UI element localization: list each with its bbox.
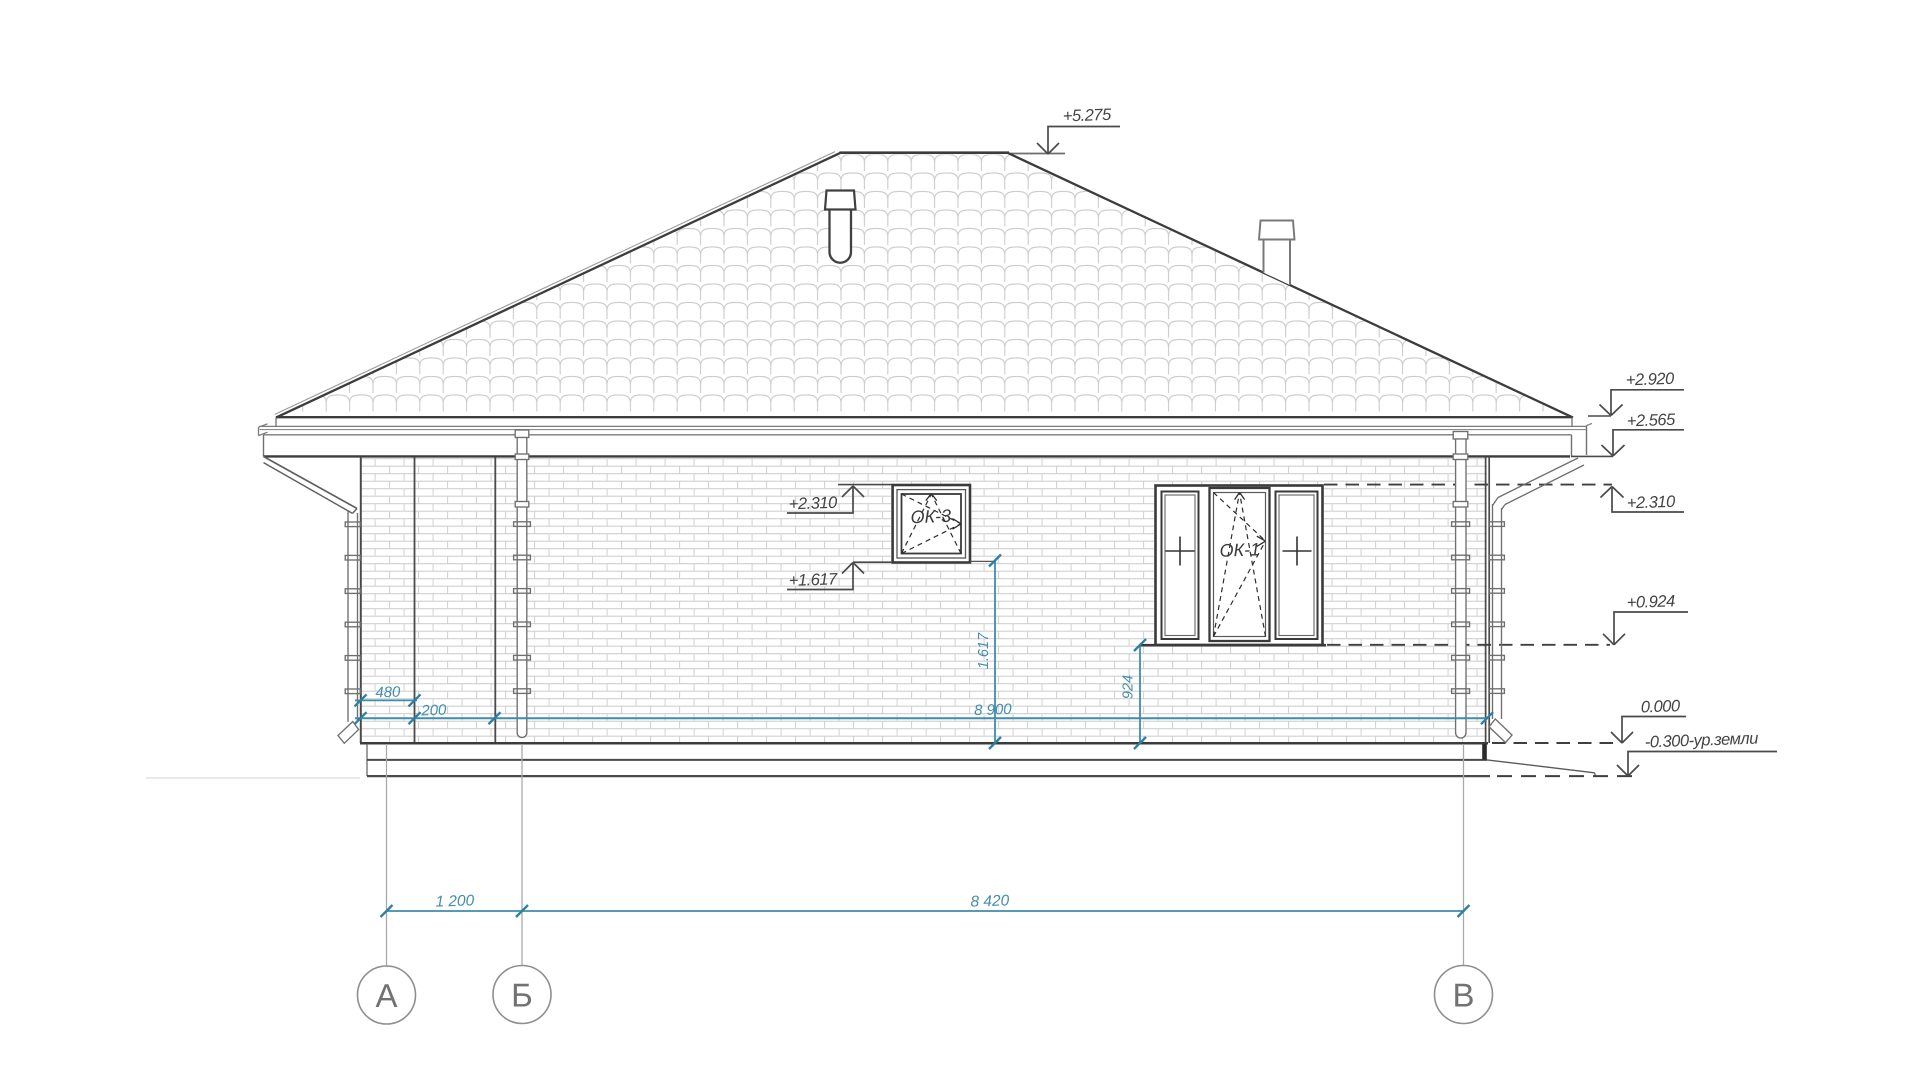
svg-text:+1.617: +1.617 <box>789 570 839 590</box>
svg-text:+2.920: +2.920 <box>1626 370 1676 390</box>
svg-text:8 420: 8 420 <box>970 892 1010 910</box>
svg-text:+2.565: +2.565 <box>1627 411 1677 431</box>
svg-text:8 900: 8 900 <box>974 701 1013 719</box>
svg-text:+2.310: +2.310 <box>1627 493 1677 513</box>
svg-text:В: В <box>1452 977 1474 1014</box>
svg-text:480: 480 <box>375 684 401 702</box>
svg-text:+0.924: +0.924 <box>1627 592 1676 612</box>
svg-text:200: 200 <box>420 702 447 720</box>
svg-text:+5.275: +5.275 <box>1063 106 1113 126</box>
svg-text:+2.310: +2.310 <box>789 494 839 514</box>
svg-text:1 200: 1 200 <box>435 892 475 910</box>
svg-text:ОК-3: ОК-3 <box>910 506 951 527</box>
svg-text:1.617: 1.617 <box>976 632 992 669</box>
svg-text:924: 924 <box>1121 675 1137 699</box>
svg-text:ОК-1: ОК-1 <box>1219 539 1260 560</box>
svg-text:А: А <box>375 977 397 1014</box>
svg-text:Б: Б <box>511 977 533 1014</box>
svg-text:0.000: 0.000 <box>1641 697 1682 716</box>
